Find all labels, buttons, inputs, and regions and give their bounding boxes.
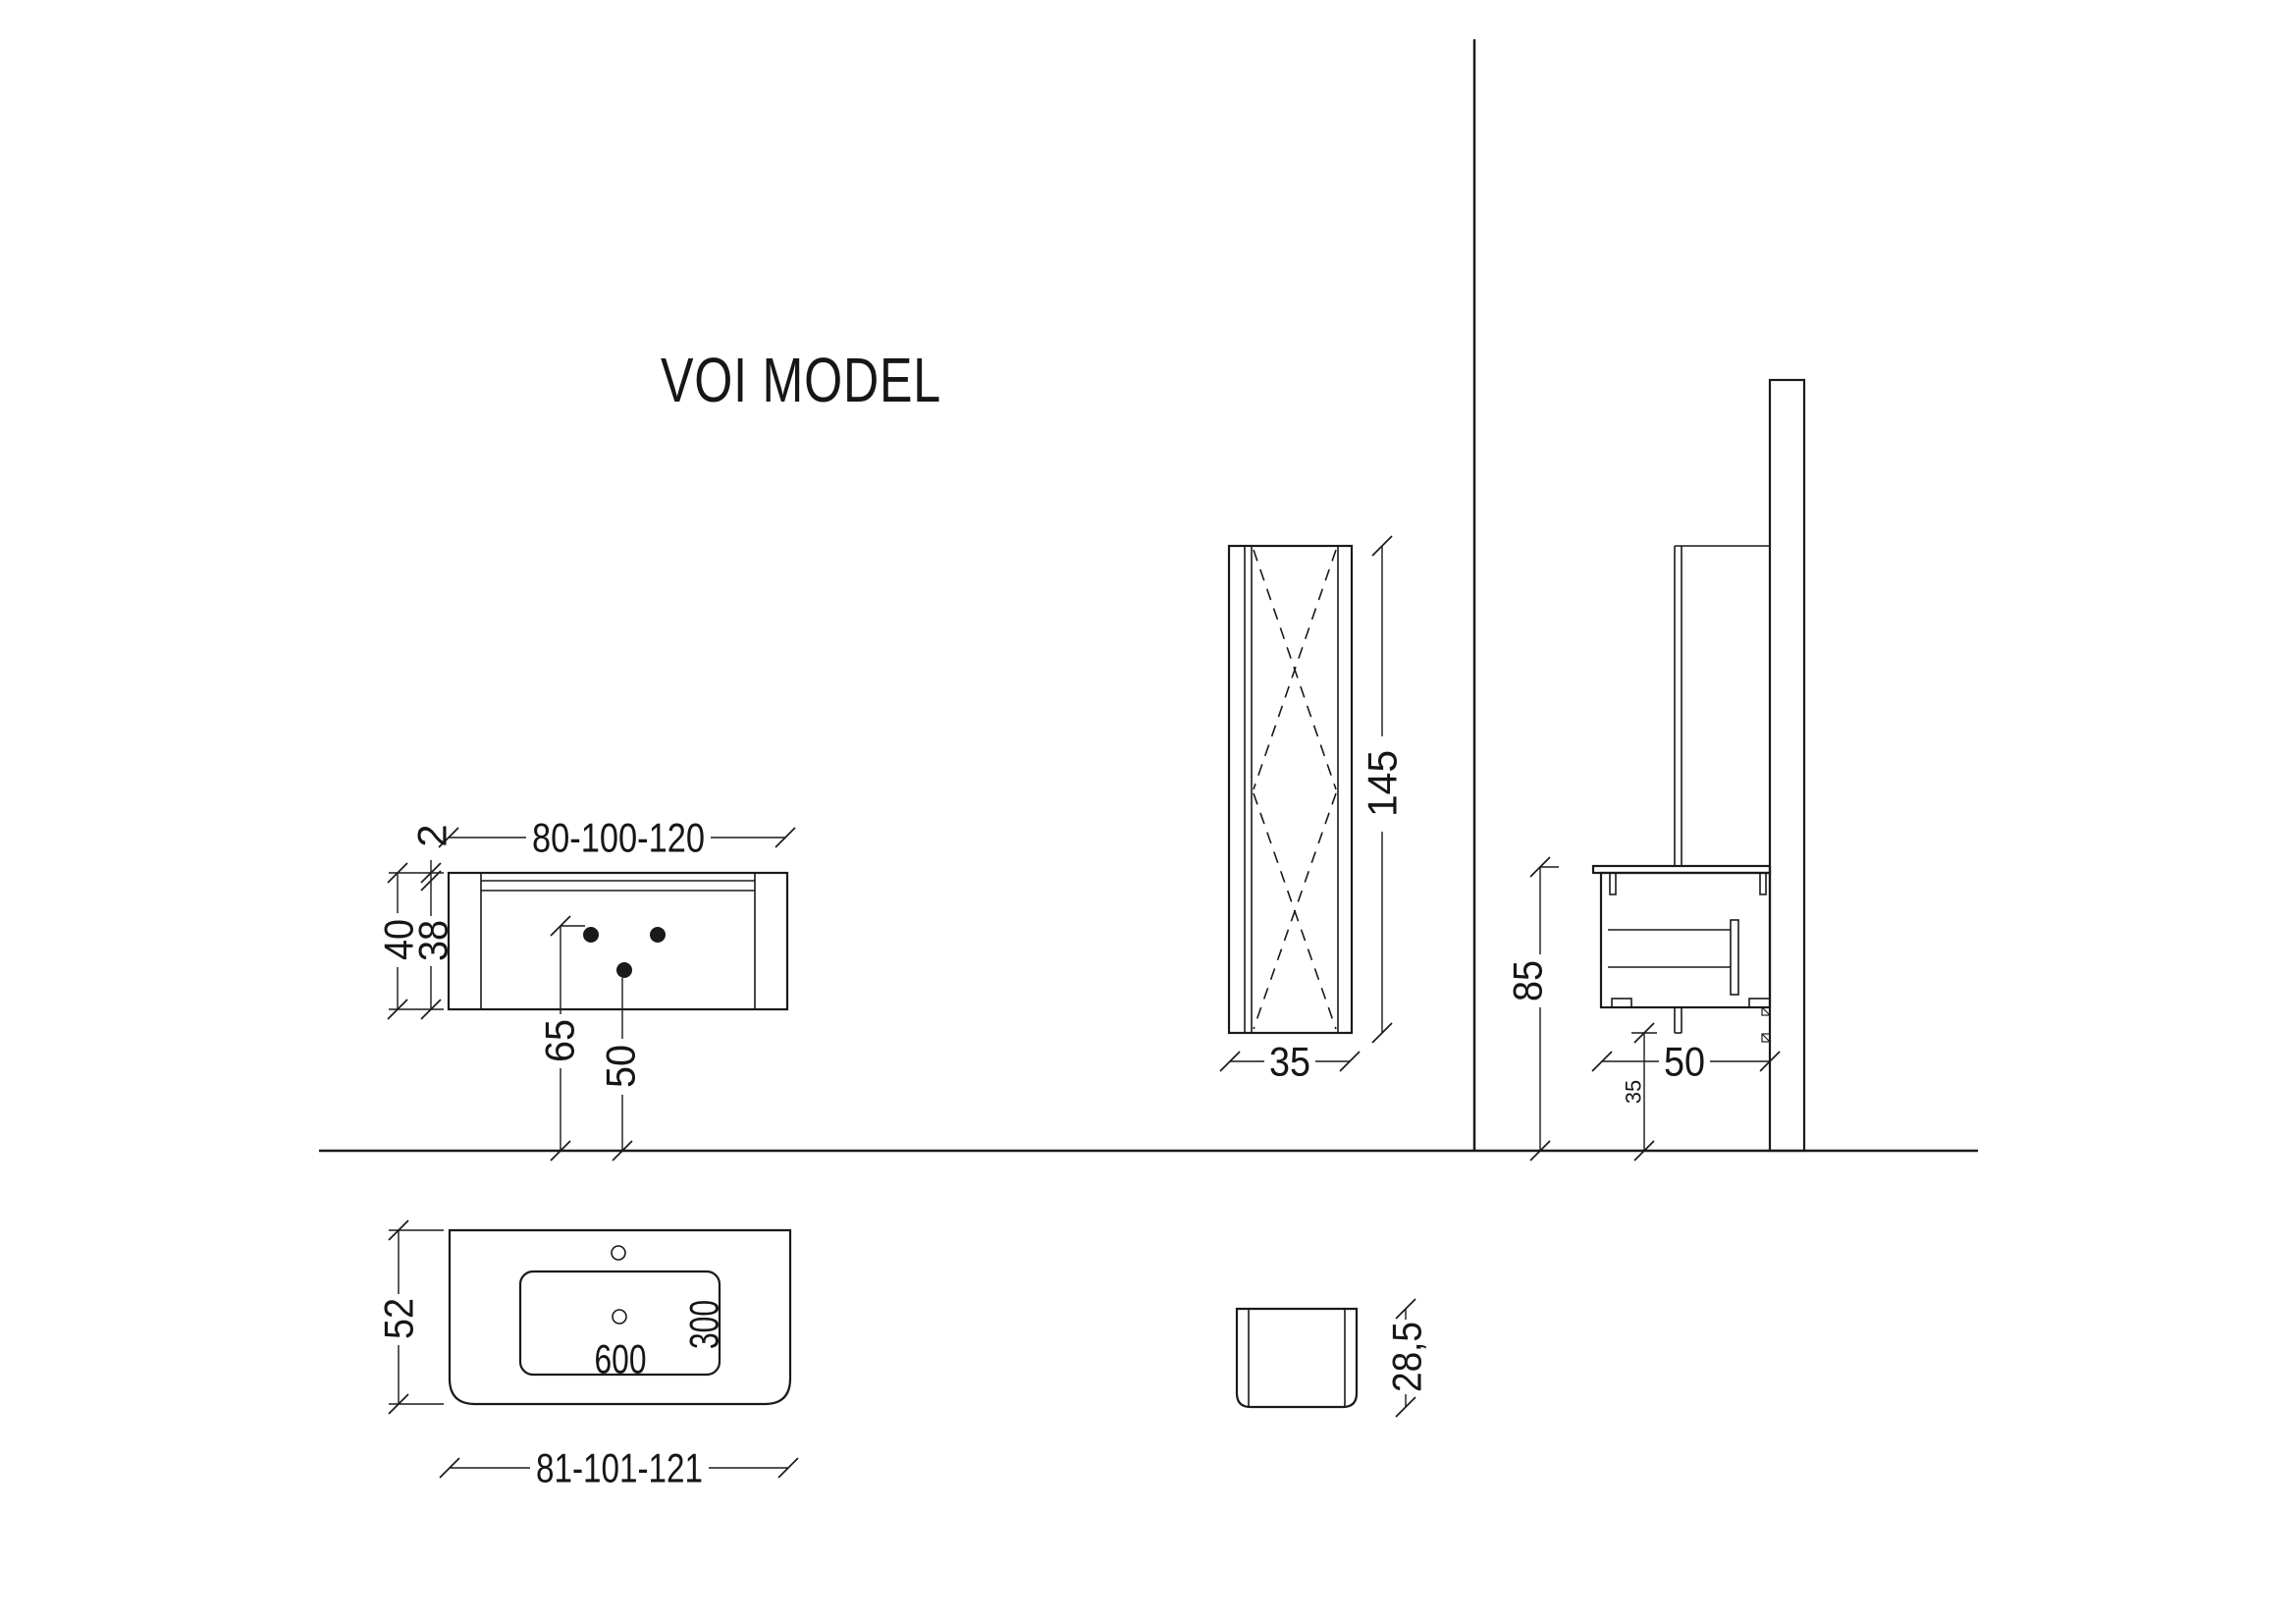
basin-drain-hole bbox=[613, 1310, 626, 1324]
technical-drawing-page: VOI MODEL 80-100-120 2 40 38 bbox=[0, 0, 2296, 1623]
vanity-side-body bbox=[1601, 873, 1770, 1007]
faucet-hole-right bbox=[650, 927, 666, 943]
wall-fixing-clip-upper bbox=[1762, 1007, 1770, 1015]
basin-depth-dimension: 52 bbox=[376, 1220, 445, 1414]
basin-height-label: 28,5 bbox=[1384, 1322, 1430, 1392]
faucet-height-dimension: 65 bbox=[537, 916, 586, 1161]
drain-hole bbox=[616, 962, 632, 978]
door-swing-symbol-upper bbox=[1254, 550, 1336, 789]
vanity-width-label: 80-100-120 bbox=[532, 815, 705, 861]
wall-fixing-clip-lower bbox=[1762, 1034, 1770, 1042]
tall-cabinet-width-label: 35 bbox=[1269, 1039, 1310, 1085]
vanity-depth-dimension: 50 bbox=[1592, 1039, 1780, 1085]
mount-bracket-right bbox=[1760, 873, 1766, 894]
countertop-thickness-label: 2 bbox=[409, 824, 455, 846]
vanity-front-outline bbox=[449, 873, 787, 1009]
tall-cabinet-left-edge-panel bbox=[1229, 546, 1245, 1033]
drawer-back-panel bbox=[1731, 920, 1738, 995]
tall-cabinet-height-dimension: 145 bbox=[1360, 536, 1406, 1043]
mount-bracket-left bbox=[1610, 873, 1616, 894]
basin-faucet-hole bbox=[612, 1246, 625, 1260]
vanity-depth-label: 50 bbox=[1664, 1039, 1705, 1085]
tall-cabinet-side-profile bbox=[1675, 546, 1770, 1033]
bowl-length-label: 600 bbox=[595, 1336, 647, 1382]
basin-section-view bbox=[1237, 1309, 1357, 1407]
side-view bbox=[1593, 380, 1804, 1151]
basin-depth-label: 52 bbox=[376, 1298, 422, 1339]
vanity-width-dimension: 80-100-120 bbox=[439, 815, 795, 861]
door-swing-symbol-lower bbox=[1254, 793, 1336, 1029]
basin-section-outline bbox=[1237, 1309, 1357, 1407]
basin-height-dimension: 28,5 bbox=[1384, 1299, 1430, 1417]
tall-cabinet-height-label: 145 bbox=[1360, 750, 1406, 817]
faucet-height-label: 65 bbox=[537, 1019, 583, 1062]
bottom-bracket-right bbox=[1749, 999, 1770, 1007]
bottom-clearance-label: 35 bbox=[1622, 1080, 1646, 1104]
worktop-height-label: 85 bbox=[1505, 960, 1551, 1001]
tall-cabinet-width-dimension: 35 bbox=[1220, 1039, 1360, 1085]
drawing-canvas: VOI MODEL 80-100-120 2 40 38 bbox=[0, 0, 2296, 1623]
bowl-depth-label: 300 bbox=[681, 1300, 727, 1349]
drain-height-label: 50 bbox=[598, 1045, 644, 1088]
tall-cabinet-outline bbox=[1229, 546, 1352, 1033]
basin-plan-view: 600 300 bbox=[450, 1230, 790, 1404]
wall-panel-side bbox=[1770, 380, 1804, 1151]
bottom-clearance-dimension: 35 bbox=[1622, 1023, 1658, 1161]
vanity-right-side-panel bbox=[755, 873, 787, 1009]
worktop-height-dimension: 85 bbox=[1505, 857, 1560, 1161]
page-title: VOI MODEL bbox=[661, 345, 941, 415]
basin-width-dimension: 81-101-121 bbox=[440, 1445, 798, 1491]
basin-width-label: 81-101-121 bbox=[536, 1445, 703, 1491]
vanity-body-height-label: 38 bbox=[410, 920, 456, 961]
drain-height-dimension: 50 bbox=[598, 978, 644, 1161]
tall-cabinet-front-view bbox=[1229, 546, 1352, 1033]
vanity-front-view bbox=[449, 873, 787, 1009]
faucet-hole-left bbox=[583, 927, 599, 943]
vanity-side-internals bbox=[1608, 873, 1770, 1042]
tall-cabinet-right-edge-panel bbox=[1338, 546, 1352, 1033]
bottom-bracket-left bbox=[1612, 999, 1631, 1007]
